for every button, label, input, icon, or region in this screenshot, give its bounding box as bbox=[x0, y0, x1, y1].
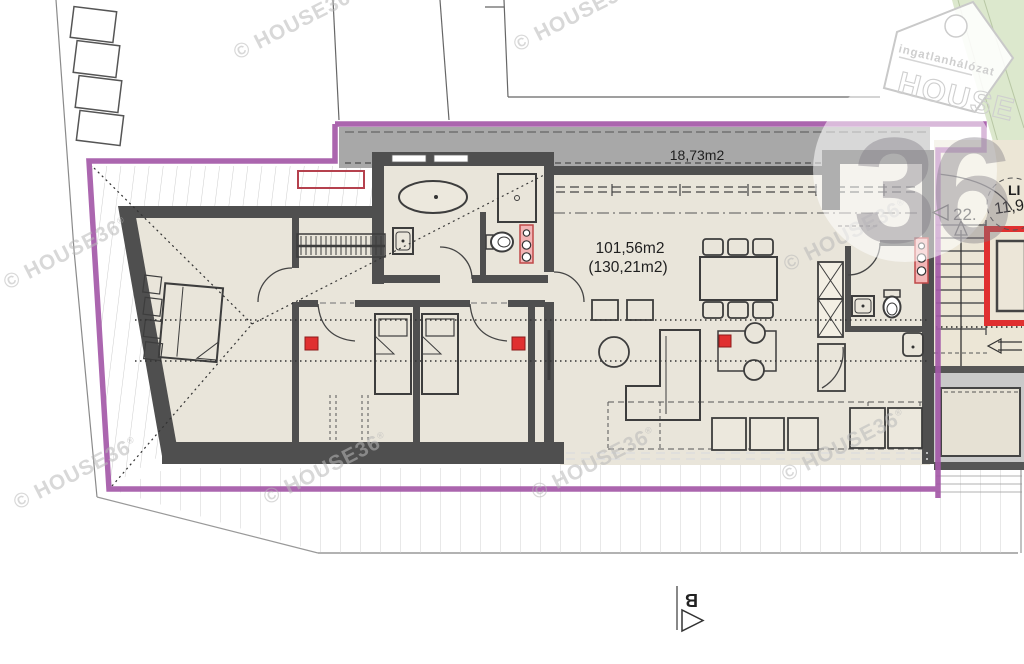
svg-text:© HOUSE36®: © HOUSE36® bbox=[230, 0, 362, 64]
svg-text:© HOUSE36®: © HOUSE36® bbox=[510, 0, 642, 56]
terrace-area-label: 18,73m2 bbox=[670, 147, 725, 163]
apartment-gross-area-label: (130,21m2) bbox=[588, 259, 667, 276]
section-arrow-icon bbox=[682, 610, 703, 631]
logo-number: 36 bbox=[853, 106, 1008, 274]
floor-plan-drawing: 18,73m2 101,56m2 (130,21m2) 22. 11,9 LI … bbox=[0, 0, 1024, 664]
apartment-net-area-label: 101,56m2 bbox=[596, 240, 665, 257]
neighbour-roof-windows bbox=[70, 7, 123, 146]
double-bed bbox=[159, 283, 223, 362]
bedroom-2 bbox=[375, 314, 411, 394]
wc-toilet bbox=[884, 297, 901, 318]
chair bbox=[744, 360, 764, 380]
floor-plan-page: 18,73m2 101,56m2 (130,21m2) 22. 11,9 LI … bbox=[0, 0, 1024, 664]
section-letter: B bbox=[685, 590, 698, 610]
chair bbox=[745, 323, 765, 343]
bathtub bbox=[399, 181, 467, 213]
section-marker-b: B bbox=[677, 586, 703, 631]
house36-logo: ingatlanhálózat HOUSE 36 bbox=[813, 2, 1019, 274]
bedroom-3 bbox=[422, 314, 458, 394]
lift-label: LI bbox=[1008, 182, 1020, 198]
